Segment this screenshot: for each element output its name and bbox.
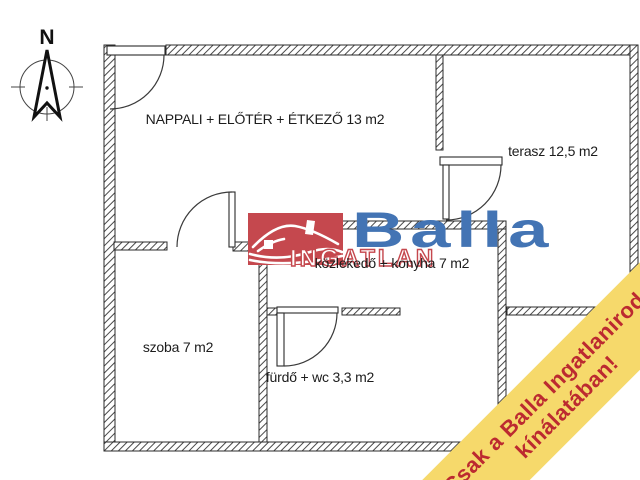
room-door-leaf [229, 192, 235, 247]
bath-door-frame [277, 307, 338, 313]
terrace-door-frame [440, 157, 502, 165]
room-east-wall [259, 242, 267, 442]
room-label-kitchen: közlekedő + konyha 7 m2 [315, 255, 470, 271]
living-terrace-divider-wall [436, 55, 443, 150]
bath-north-wall-right [342, 308, 400, 315]
floor-plan-canvas: N NAPPALI + ELŐTÉR + ÉTKEZŐ 13 m2 terasz… [0, 0, 640, 480]
north-arrow-icon [34, 50, 60, 117]
room-label-room: szoba 7 m2 [143, 339, 213, 355]
compass-north-label: N [39, 26, 54, 50]
entry-door-swing-arc [110, 55, 164, 109]
bottom-wall [104, 442, 507, 451]
living-south-wall-left [114, 242, 167, 250]
room-label-living: NAPPALI + ELŐTÉR + ÉTKEZŐ 13 m2 [146, 111, 385, 127]
bath-north-wall-left [267, 308, 277, 315]
top-wall [166, 45, 638, 55]
room-door-swing-arc [177, 192, 232, 247]
room-label-bathroom: fürdő + wc 3,3 m2 [266, 369, 374, 385]
compass-icon [11, 50, 83, 121]
left-wall [104, 45, 115, 451]
room-label-terrace: terasz 12,5 m2 [508, 143, 598, 159]
bath-door-leaf [277, 313, 284, 366]
entry-door-panel [107, 46, 165, 55]
bath-door-swing-arc [284, 313, 337, 366]
